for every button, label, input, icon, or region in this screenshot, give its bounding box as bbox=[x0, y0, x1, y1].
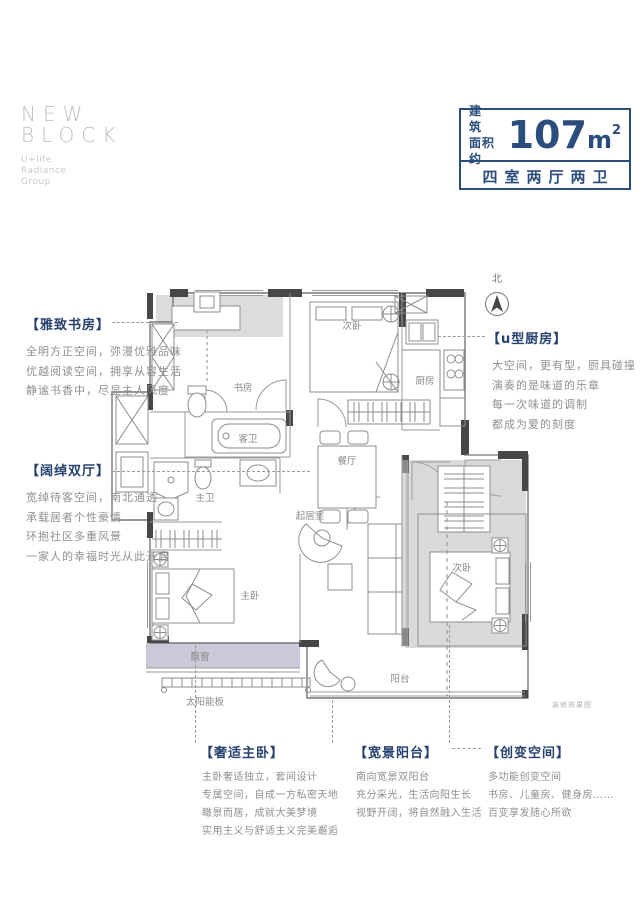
annotation-line: 全明方正空间，弥漫优雅品味 bbox=[26, 342, 182, 362]
annotation-line: 实用主义与舒适主义完美邂逅 bbox=[202, 823, 339, 841]
room-label-master-bath: 主卫 bbox=[195, 492, 215, 504]
annotation-line: 瞰景而居，成就大美梦境 bbox=[202, 805, 339, 823]
balcony-furniture bbox=[314, 660, 355, 691]
annotation-study-title: 【雅致书房】 bbox=[26, 314, 182, 333]
room-label-solar-panel: 太阳能板 bbox=[186, 696, 225, 708]
logo-tagline-1: U+life bbox=[21, 155, 122, 166]
annotation-master: 【奢适主卧】 主卧奢适独立，套间设计 专属空间，自成一方私密天地 瞰景而居，成就… bbox=[200, 742, 339, 841]
bay-window-zone bbox=[146, 643, 300, 668]
room-label-dining: 餐厅 bbox=[337, 455, 357, 467]
annotation-halls: 【阔绰双厅】 宽绰待客空间，南北通透 承载居者个性豪情 环抱社区多重风景 一家人… bbox=[26, 460, 170, 566]
annotation-line: 一家人的幸福时光从此开启 bbox=[26, 547, 170, 567]
living-furniture bbox=[299, 524, 402, 634]
area-row: 建筑 面积约 107m2 bbox=[461, 110, 629, 162]
annotation-balcony-title: 【宽景阳台】 bbox=[354, 742, 482, 761]
annotation-master-title: 【奢适主卧】 bbox=[200, 742, 339, 761]
room-label-guest-bath: 客卫 bbox=[238, 433, 258, 445]
annotation-line: 都成为爱的刻度 bbox=[492, 415, 636, 435]
area-info-box: 建筑 面积约 107m2 四室两厅两卫 bbox=[459, 108, 631, 190]
master-bath-fixtures bbox=[154, 460, 276, 520]
annotation-line: 主卧奢适独立，套间设计 bbox=[202, 769, 339, 787]
annotation-study: 【雅致书房】 全明方正空间，弥漫优雅品味 优越阅读空间，拥享从容生活 静谧书香中… bbox=[26, 314, 182, 401]
area-value: 107m2 bbox=[508, 112, 621, 159]
annotation-line: 多功能创变空间 bbox=[488, 769, 614, 787]
area-label-line1: 建筑 bbox=[469, 103, 504, 135]
room-label-bay-window: 飘窗 bbox=[190, 651, 209, 663]
annotation-balcony-body: 南向宽景双阳台 充分采光，生活向阳生长 视野开阔，将自然融入生活 bbox=[356, 769, 482, 823]
logo-line-1: NEW bbox=[21, 104, 122, 125]
annotation-halls-body: 宽绰待客空间，南北通透 承载居者个性豪情 环抱社区多重风景 一家人的幸福时光从此… bbox=[26, 488, 170, 566]
area-label-line2: 面积约 bbox=[469, 135, 504, 167]
guest-bath-fixtures bbox=[188, 386, 286, 453]
annotation-master-body: 主卧奢适独立，套间设计 专属空间，自成一方私密天地 瞰景而居，成就大美梦境 实用… bbox=[202, 769, 339, 841]
annotation-line: 静谧书香中，尽显主人风度 bbox=[26, 381, 182, 401]
layout-summary: 四室两厅两卫 bbox=[461, 162, 629, 190]
annotation-halls-title: 【阔绰双厅】 bbox=[26, 460, 170, 479]
room-label-study: 书房 bbox=[233, 382, 252, 394]
annotation-kitchen-body: 大空间，更有型，厨具碰撞 演奏的是味道的乐章 每一次味道的调制 都成为爱的刻度 bbox=[492, 356, 636, 434]
annotation-flex: 【创变空间】 多功能创变空间 书房、儿童房、健身房…… 百变享发随心所欲 bbox=[486, 742, 614, 823]
annotation-line: 大空间，更有型，厨具碰撞 bbox=[492, 356, 636, 376]
annotation-line: 充分采光，生活向阳生长 bbox=[356, 787, 482, 805]
annotation-balcony: 【宽景阳台】 南向宽景双阳台 充分采光，生活向阳生长 视野开阔，将自然融入生活 bbox=[354, 742, 482, 823]
annotation-line: 优越阅读空间，拥享从容生活 bbox=[26, 362, 182, 382]
annotation-line: 演奏的是味道的乐章 bbox=[492, 376, 636, 396]
north-arrow: 北 bbox=[486, 273, 509, 316]
room-label-living: 起居室 bbox=[296, 510, 325, 522]
annotation-kitchen: 【u型厨房】 大空间，更有型，厨具碰撞 演奏的是味道的乐章 每一次味道的调制 都… bbox=[487, 328, 636, 434]
annotation-flex-body: 多功能创变空间 书房、儿童房、健身房…… 百变享发随心所欲 bbox=[488, 769, 614, 823]
connector-kitchen bbox=[438, 336, 485, 337]
annotation-line: 视野开阔，将自然融入生活 bbox=[356, 805, 482, 823]
area-unit: m bbox=[587, 126, 612, 154]
brand-logo: NEW BLOCK U+life Radiance Group bbox=[21, 104, 122, 188]
room-label-kitchen: 厨房 bbox=[415, 375, 434, 387]
connector-flex-v bbox=[449, 625, 450, 743]
annotation-line: 每一次味道的调制 bbox=[492, 395, 636, 415]
area-label: 建筑 面积约 bbox=[469, 103, 504, 167]
annotation-line: 环抱社区多重风景 bbox=[26, 527, 170, 547]
annotation-line: 承载居者个性豪情 bbox=[26, 508, 170, 528]
area-superscript: 2 bbox=[612, 123, 621, 138]
annotation-flex-title: 【创变空间】 bbox=[486, 742, 614, 761]
logo-line-2: BLOCK bbox=[21, 125, 122, 146]
annotation-line: 专属空间，自成一方私密天地 bbox=[202, 787, 339, 805]
insulated-wall bbox=[403, 460, 408, 646]
annotation-line: 宽绰待客空间，南北通透 bbox=[26, 488, 170, 508]
room-label-balcony: 阳台 bbox=[390, 673, 409, 685]
logo-tagline-3: Group bbox=[21, 177, 122, 188]
room-label-bedroom-top: 次卧 bbox=[342, 320, 362, 332]
annotation-line: 书房、儿童房、健身房…… bbox=[488, 787, 614, 805]
room-label-master-bedroom: 主卧 bbox=[240, 590, 260, 602]
north-needle bbox=[491, 295, 503, 312]
connector-balcony bbox=[332, 700, 333, 743]
area-number: 107 bbox=[508, 113, 587, 157]
north-label: 北 bbox=[492, 273, 502, 285]
poster-page: { "logo": { "line1": "NEW", "line2": "BL… bbox=[0, 0, 640, 920]
bedroom-top-furniture bbox=[310, 296, 430, 424]
annotation-kitchen-title: 【u型厨房】 bbox=[487, 328, 636, 347]
room-label-bedroom-right: 次卧 bbox=[452, 562, 472, 574]
logo-tagline-2: Radiance bbox=[21, 166, 122, 177]
plan-caption: 装修效果图 bbox=[552, 700, 592, 710]
connector-master bbox=[195, 645, 196, 743]
solar-panel-symbol bbox=[162, 678, 311, 693]
annotation-line: 南向宽景双阳台 bbox=[356, 769, 482, 787]
annotation-line: 百变享发随心所欲 bbox=[488, 805, 614, 823]
annotation-study-body: 全明方正空间，弥漫优雅品味 优越阅读空间，拥享从容生活 静谧书香中，尽显主人风度 bbox=[26, 342, 182, 401]
